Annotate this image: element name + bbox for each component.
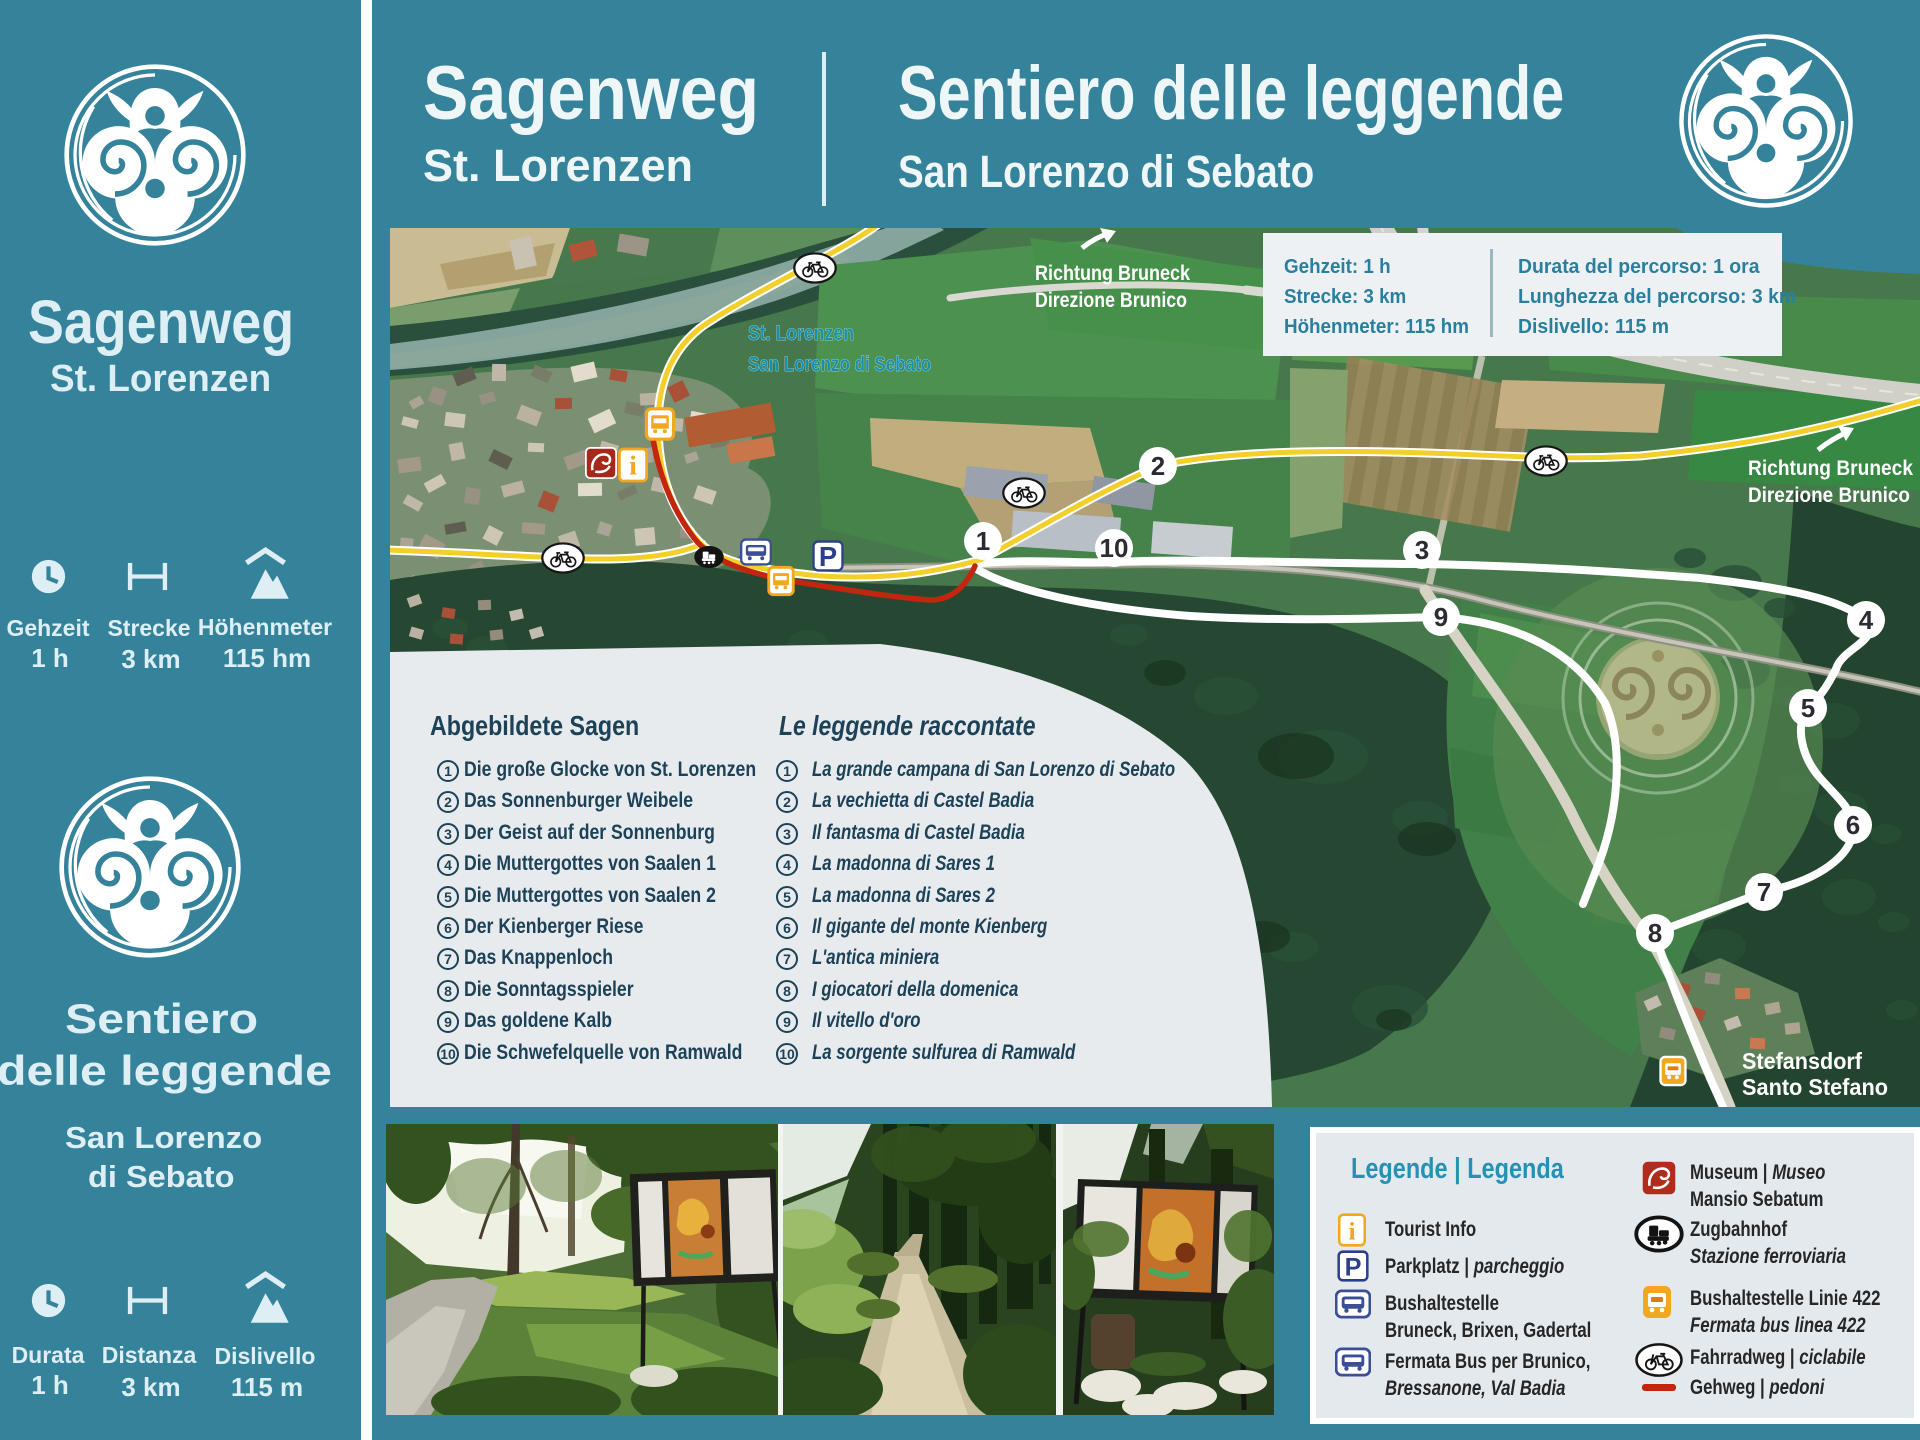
svg-text:4: 4 <box>1859 605 1874 635</box>
svg-text:5: 5 <box>1801 693 1815 723</box>
svg-text:San Lorenzo di Sebato: San Lorenzo di Sebato <box>748 353 931 376</box>
svg-text:1: 1 <box>976 526 990 556</box>
svg-text:Richtung Bruneck: Richtung Bruneck <box>1748 457 1913 480</box>
svg-text:Direzione Brunico: Direzione Brunico <box>1035 289 1187 312</box>
svg-text:6: 6 <box>1846 810 1860 840</box>
svg-text:8: 8 <box>1648 918 1662 948</box>
svg-text:Richtung Bruneck: Richtung Bruneck <box>1035 262 1190 285</box>
svg-text:P: P <box>819 541 837 572</box>
svg-text:Direzione Brunico: Direzione Brunico <box>1748 484 1910 507</box>
svg-text:i: i <box>1348 1216 1355 1245</box>
svg-text:St. Lorenzen: St. Lorenzen <box>748 322 854 345</box>
svg-text:3: 3 <box>1415 535 1429 565</box>
svg-text:10: 10 <box>1100 533 1129 563</box>
svg-text:Santo Stefano: Santo Stefano <box>1742 1074 1888 1100</box>
svg-text:2: 2 <box>1151 451 1165 481</box>
svg-text:P: P <box>1345 1253 1362 1281</box>
svg-text:7: 7 <box>1757 877 1771 907</box>
svg-text:9: 9 <box>1434 602 1448 632</box>
svg-text:Stefansdorf: Stefansdorf <box>1742 1048 1862 1074</box>
svg-text:i: i <box>629 451 637 481</box>
